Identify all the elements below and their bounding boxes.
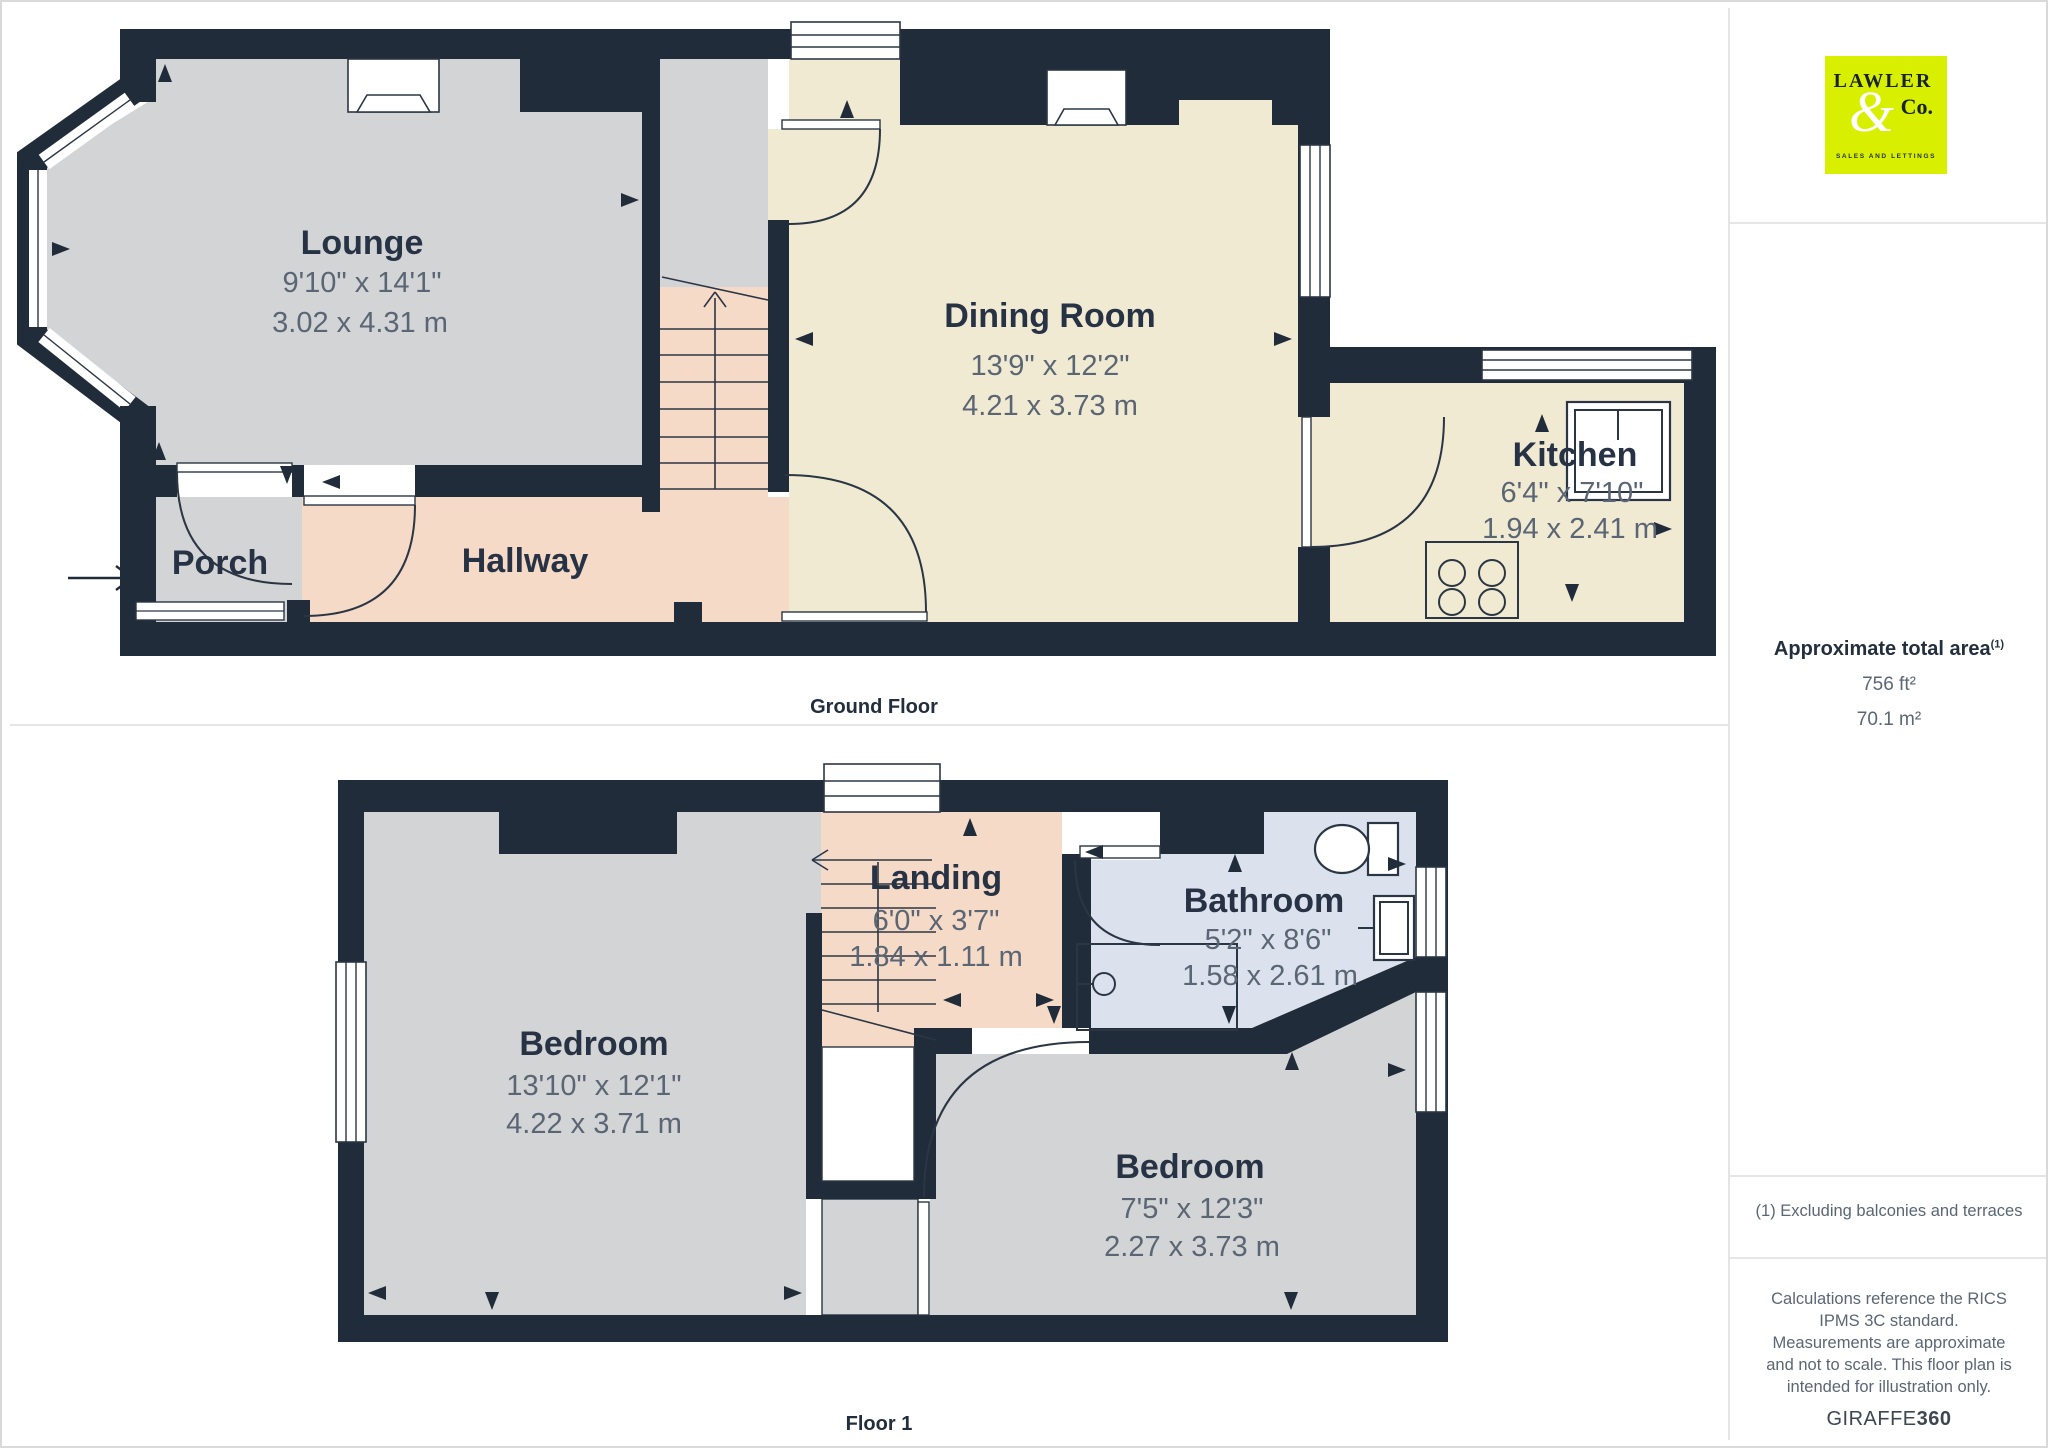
svg-text:3.02 x 4.31 m: 3.02 x 4.31 m [272,307,448,339]
svg-text:7'5" x 12'3": 7'5" x 12'3" [1121,1193,1264,1225]
room-label-hallway: Hallway [462,542,589,580]
svg-text:2.27 x 3.73 m: 2.27 x 3.73 m [1104,1231,1280,1263]
stairs-ground [660,287,768,497]
porch-front-door [136,602,284,620]
room-label-landing: Landing 6'0" x 3'7" 1.84 x 1.11 m [849,859,1023,973]
room-label-porch: Porch [172,544,268,582]
window-kitchen-top [1482,350,1692,380]
svg-text:Bedroom: Bedroom [1115,1148,1264,1186]
entry-arrow [68,566,132,590]
svg-text:Bathroom: Bathroom [1184,882,1345,920]
total-area-ft: 756 ft² [1728,674,2048,696]
under-stair-floor [822,1199,918,1315]
brand-suffix: 360 [1917,1408,1952,1430]
svg-text:4.21 x 3.73 m: 4.21 x 3.73 m [962,390,1138,422]
agency-logo: LAWLER & Co. SALES AND LETTINGS [1825,56,1947,174]
svg-text:1.58 x 2.61 m: 1.58 x 2.61 m [1182,960,1358,992]
room-label-bedroom-right: Bedroom 7'5" x 12'3" 2.27 x 3.73 m [1104,1148,1280,1263]
svg-text:6'0" x 3'7": 6'0" x 3'7" [873,905,1000,937]
room-lounge [156,59,642,465]
logo-tagline: SALES AND LETTINGS [1825,153,1947,160]
svg-text:Kitchen: Kitchen [1513,436,1638,474]
svg-text:Bedroom: Bedroom [519,1025,668,1063]
svg-text:Dining Room: Dining Room [944,297,1156,335]
brand-name: GIRAFFE [1826,1408,1916,1430]
svg-text:5'2" x 8'6": 5'2" x 8'6" [1205,924,1332,956]
floorplan-page: Lounge 9'10" x 14'1" 3.02 x 4.31 m Dinin… [0,0,2048,1448]
niche-dining [1179,100,1272,125]
total-area-title: Approximate total area(1) [1728,638,2048,661]
floor-plan-first: Landing 6'0" x 3'7" 1.84 x 1.11 m Bathro… [336,764,1448,1435]
stair-top-floor [660,59,768,287]
window-landing-top [824,764,940,812]
toilet [1315,823,1398,875]
stair-void [822,1047,914,1181]
room-label-bedroom-left: Bedroom 13'10" x 12'1" 4.22 x 3.71 m [506,1025,682,1140]
area-footnote: (1) Excluding balconies and terraces [1728,1202,2048,1221]
room-bedroom-left [364,812,821,1315]
room-label-dining: Dining Room 13'9" x 12'2" 4.21 x 3.73 m [944,297,1156,422]
window-bedroom-left [336,962,366,1142]
caption-ground-floor: Ground Floor [810,696,938,718]
svg-text:6'4" x 7'10": 6'4" x 7'10" [1501,477,1644,509]
logo-ampersand: & [1849,78,1894,145]
svg-text:4.22 x 3.71 m: 4.22 x 3.71 m [506,1108,682,1140]
svg-text:Landing: Landing [870,859,1002,897]
window-dining-right [1300,145,1330,297]
logo-text-co: Co. [1901,94,1933,120]
svg-text:13'9" x 12'2": 13'9" x 12'2" [970,350,1129,382]
caption-floor-1: Floor 1 [846,1413,913,1435]
giraffe360-brand: GIRAFFE360 [1728,1408,2048,1431]
sidebar-rule-footnote-bottom [1730,1257,2048,1259]
total-area-m: 70.1 m² [1728,709,2048,731]
window-bathroom-right [1416,867,1446,957]
svg-text:Lounge: Lounge [301,224,424,262]
svg-text:13'10" x 12'1": 13'10" x 12'1" [506,1070,681,1102]
floor-plan-ground: Lounge 9'10" x 14'1" 3.02 x 4.31 m Dinin… [32,22,1716,718]
footnote-marker: (1) [1991,638,2004,650]
sidebar-rule-top [1730,222,2048,224]
floorplan-canvas: Lounge 9'10" x 14'1" 3.02 x 4.31 m Dinin… [2,2,1733,1448]
total-area-block: Approximate total area(1) 756 ft² 70.1 m… [1728,638,2048,731]
disclaimer-text: Calculations reference the RICS IPMS 3C … [1765,1288,2013,1398]
window-above-stairs [791,22,900,59]
sidebar-rule-footnote-top [1730,1175,2048,1177]
window-bedroom-right [1416,992,1446,1112]
svg-text:1.84 x 1.11 m: 1.84 x 1.11 m [849,941,1023,973]
svg-text:9'10" x 14'1": 9'10" x 14'1" [282,267,441,299]
chimney-dining [1047,70,1126,125]
chimney-lounge [348,59,439,112]
svg-text:1.94 x 2.41 m: 1.94 x 2.41 m [1482,513,1658,545]
